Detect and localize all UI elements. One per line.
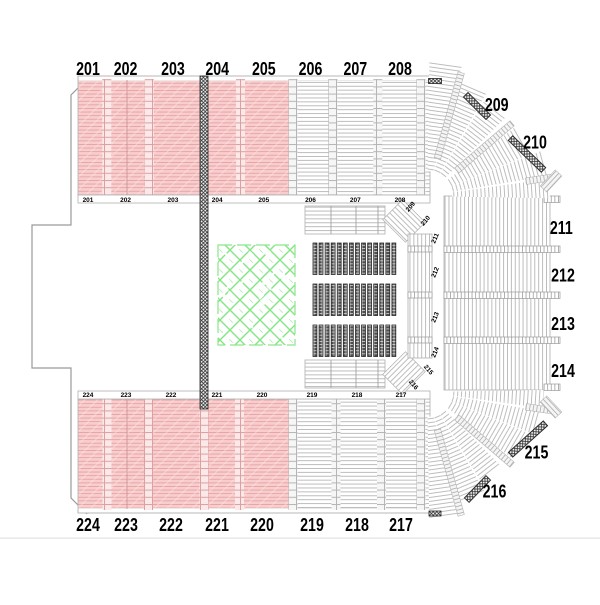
svg-text:203: 203 xyxy=(167,197,178,204)
svg-text:204: 204 xyxy=(205,59,229,79)
svg-text:201: 201 xyxy=(76,59,100,79)
svg-text:206: 206 xyxy=(299,59,323,79)
svg-text:217: 217 xyxy=(389,515,413,535)
svg-text:219: 219 xyxy=(307,392,318,399)
svg-text:216: 216 xyxy=(483,482,507,502)
svg-text:203: 203 xyxy=(161,59,185,79)
svg-text:224: 224 xyxy=(83,392,94,399)
svg-text:221: 221 xyxy=(205,515,229,535)
svg-text:211: 211 xyxy=(550,218,573,238)
svg-text:215: 215 xyxy=(525,443,549,463)
svg-text:207: 207 xyxy=(343,59,367,79)
svg-text:218: 218 xyxy=(345,515,369,535)
svg-text:205: 205 xyxy=(258,197,269,204)
svg-text:209: 209 xyxy=(485,95,509,115)
svg-text:213: 213 xyxy=(551,314,575,334)
svg-text:204: 204 xyxy=(212,197,223,204)
svg-text:206: 206 xyxy=(305,197,316,204)
svg-text:210: 210 xyxy=(523,133,547,153)
svg-text:202: 202 xyxy=(120,197,131,204)
svg-text:205: 205 xyxy=(252,59,276,79)
svg-text:220: 220 xyxy=(257,392,268,399)
svg-text:218: 218 xyxy=(352,392,363,399)
svg-text:216: 216 xyxy=(407,379,420,392)
svg-text:201: 201 xyxy=(83,197,94,204)
svg-text:214: 214 xyxy=(551,361,575,381)
svg-text:221: 221 xyxy=(212,392,223,399)
svg-text:210: 210 xyxy=(420,214,433,227)
svg-text:202: 202 xyxy=(114,59,138,79)
svg-text:220: 220 xyxy=(250,515,274,535)
svg-text:207: 207 xyxy=(350,197,361,204)
svg-text:223: 223 xyxy=(121,392,132,399)
svg-text:208: 208 xyxy=(395,197,406,204)
svg-text:222: 222 xyxy=(166,392,177,399)
svg-text:224: 224 xyxy=(76,515,100,535)
svg-text:212: 212 xyxy=(551,266,575,286)
svg-text:208: 208 xyxy=(388,59,412,79)
svg-text:219: 219 xyxy=(300,515,324,535)
svg-text:222: 222 xyxy=(159,515,183,535)
svg-text:215: 215 xyxy=(422,364,435,377)
svg-text:217: 217 xyxy=(396,392,407,399)
svg-text:223: 223 xyxy=(114,515,138,535)
